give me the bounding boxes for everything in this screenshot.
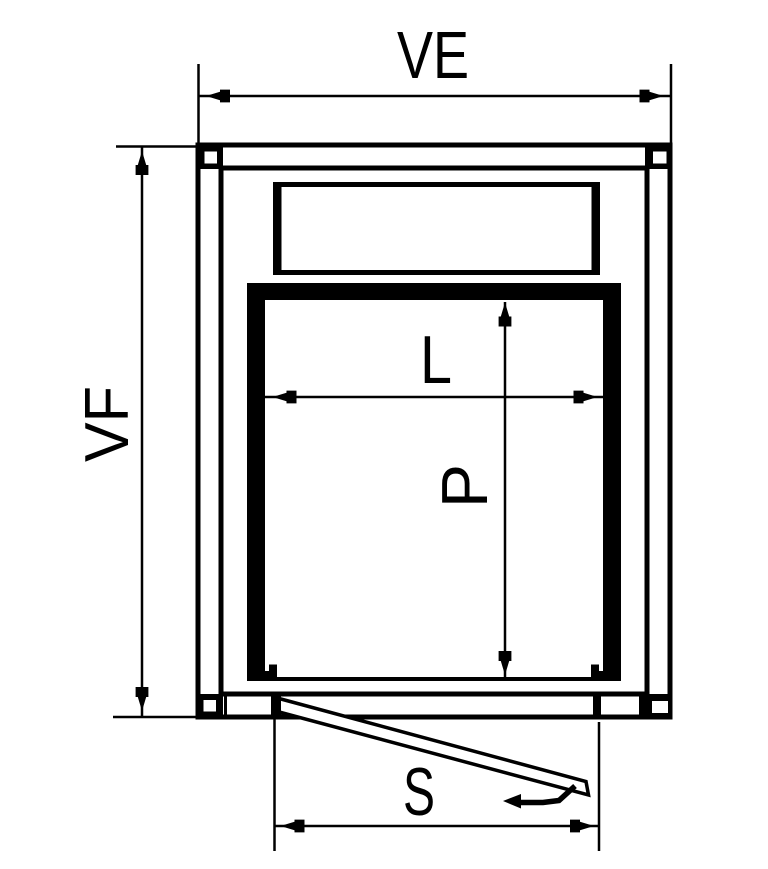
svg-text:VE: VE (397, 18, 469, 93)
svg-text:S: S (403, 754, 435, 830)
svg-text:L: L (420, 322, 452, 398)
svg-text:P: P (428, 464, 501, 508)
svg-text:VF: VF (73, 386, 142, 462)
